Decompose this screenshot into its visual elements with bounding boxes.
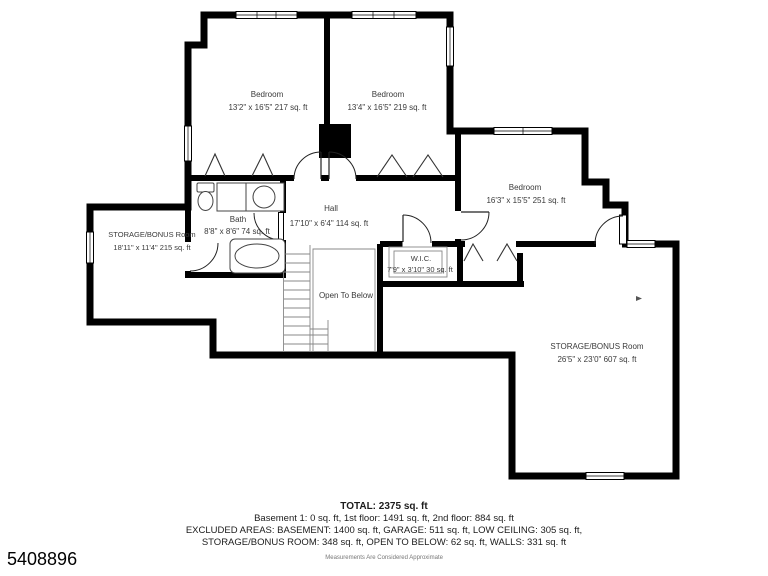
bedroom1-dims: 13'2" x 16'5" 217 sq. ft [228, 103, 308, 112]
toilet-tank [197, 183, 214, 192]
open-to-below-label: Open To Below [319, 291, 373, 300]
sink-basin [253, 186, 275, 208]
bedroom2-dims: 13'4" x 16'5" 219 sq. ft [347, 103, 427, 112]
toilet-bowl [198, 192, 213, 211]
storage-right-name: STORAGE/BONUS Room [550, 342, 644, 351]
bedroom1-name: Bedroom [251, 90, 284, 99]
floorplan-drawing: Bedroom 13'2" x 16'5" 217 sq. ft Bedroom… [0, 0, 768, 500]
disclaimer-text: Measurements Are Considered Approximate [325, 554, 443, 561]
small-marker [636, 296, 642, 301]
storage-door-leaf [620, 215, 627, 244]
bedroom3-name: Bedroom [509, 183, 542, 192]
bath-name: Bath [230, 215, 246, 224]
excluded-areas-line1: EXCLUDED AREAS: BASEMENT: 1400 sq. ft, G… [0, 525, 768, 537]
floorplan-canvas: Bedroom 13'2" x 16'5" 217 sq. ft Bedroom… [0, 0, 768, 500]
excluded-areas-line2: STORAGE/BONUS ROOM: 348 sq. ft, OPEN TO … [0, 537, 768, 549]
listing-id: 5408896 [7, 549, 77, 570]
floor-areas: Basement 1: 0 sq. ft, 1st floor: 1491 sq… [0, 513, 768, 525]
bath-door-leaf [279, 213, 284, 241]
bedroom2-name: Bedroom [372, 90, 405, 99]
hall-dims: 17'10" x 6'4" 114 sq. ft [290, 219, 369, 228]
storage-left-dims: 18'11" x 11'4" 215 sq. ft [113, 243, 191, 252]
hall-name: Hall [324, 204, 338, 213]
bedroom3-dims: 16'3" x 15'5" 251 sq. ft [486, 196, 566, 205]
wic-name: W.I.C. [411, 254, 431, 263]
bath-dims: 8'8" x 8'6" 74 sq. ft [204, 227, 270, 236]
open-to-below-rail [313, 249, 375, 352]
storage-left-name: STORAGE/BONUS Room [108, 230, 195, 239]
storage-right-dims: 26'5" x 23'0" 607 sq. ft [557, 355, 637, 364]
wic-dims: 7'9" x 3'10" 30 sq. ft [387, 265, 454, 274]
total-area: TOTAL: 2375 sq. ft [0, 501, 768, 513]
area-summary: TOTAL: 2375 sq. ft Basement 1: 0 sq. ft,… [0, 501, 768, 567]
